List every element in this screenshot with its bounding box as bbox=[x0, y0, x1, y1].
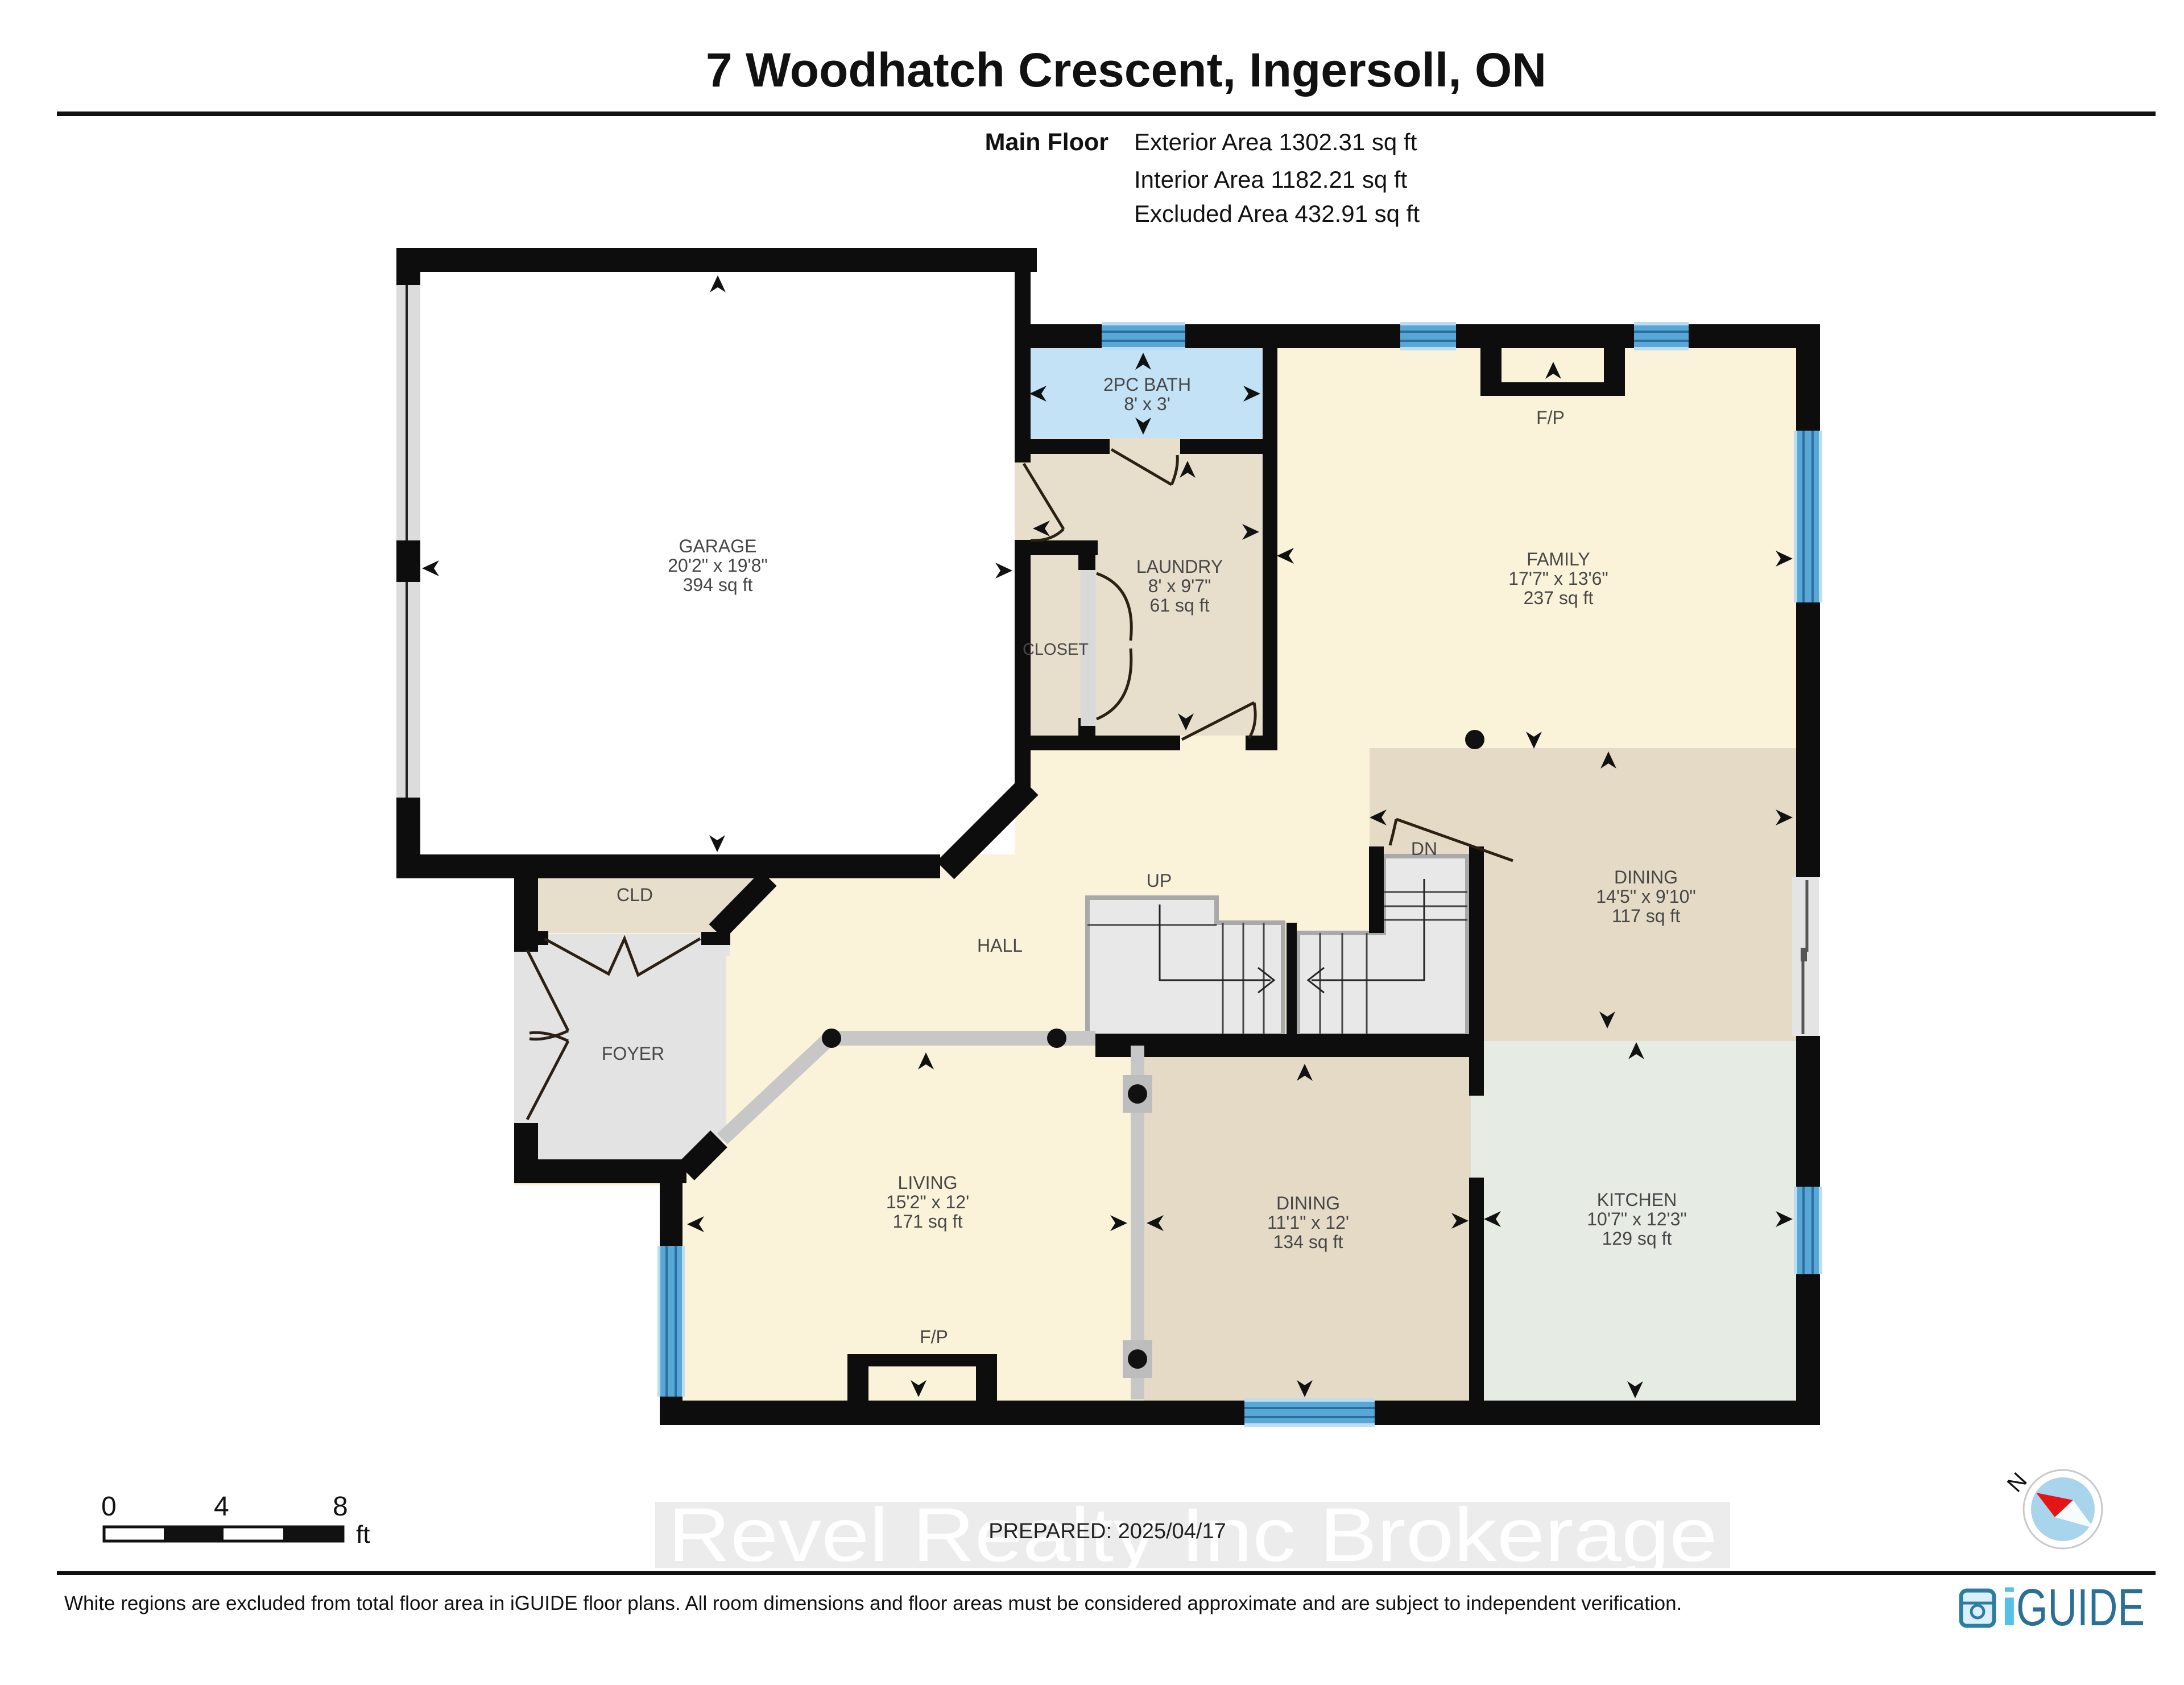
svg-text:8' x 3': 8' x 3' bbox=[1124, 394, 1170, 414]
svg-text:61 sq ft: 61 sq ft bbox=[1150, 595, 1210, 616]
svg-text:8' x 9'7": 8' x 9'7" bbox=[1148, 576, 1211, 596]
svg-text:15'2" x 12': 15'2" x 12' bbox=[886, 1192, 969, 1212]
svg-text:KITCHEN: KITCHEN bbox=[1597, 1190, 1677, 1210]
svg-text:F/P: F/P bbox=[1536, 407, 1565, 428]
svg-text:237 sq ft: 237 sq ft bbox=[1524, 588, 1594, 608]
svg-text:CLD: CLD bbox=[617, 885, 653, 905]
svg-text:14'5" x 9'10": 14'5" x 9'10" bbox=[1596, 886, 1696, 907]
svg-text:F/P: F/P bbox=[920, 1327, 948, 1347]
svg-text:Excluded Area 432.91 sq ft: Excluded Area 432.91 sq ft bbox=[1134, 200, 1420, 227]
svg-text:FOYER: FOYER bbox=[602, 1043, 664, 1064]
svg-text:DINING: DINING bbox=[1276, 1193, 1340, 1213]
svg-text:PREPARED: 2025/04/17: PREPARED: 2025/04/17 bbox=[988, 1519, 1226, 1543]
svg-text:4: 4 bbox=[214, 1492, 229, 1522]
svg-text:White regions are excluded fro: White regions are excluded from total fl… bbox=[64, 1592, 1682, 1614]
svg-text:0: 0 bbox=[101, 1492, 117, 1522]
svg-text:17'7" x 13'6": 17'7" x 13'6" bbox=[1508, 568, 1608, 589]
svg-text:GUIDE: GUIDE bbox=[2016, 1579, 2145, 1637]
svg-text:GARAGE: GARAGE bbox=[679, 536, 757, 556]
svg-text:134 sq ft: 134 sq ft bbox=[1273, 1232, 1343, 1252]
svg-text:10'7" x 12'3": 10'7" x 12'3" bbox=[1587, 1209, 1687, 1229]
svg-text:Exterior Area 1302.31 sq ft: Exterior Area 1302.31 sq ft bbox=[1134, 129, 1417, 155]
svg-text:7 Woodhatch Crescent, Ingersol: 7 Woodhatch Crescent, Ingersoll, ON bbox=[706, 43, 1546, 97]
svg-text:Interior Area 1182.21 sq ft: Interior Area 1182.21 sq ft bbox=[1134, 166, 1408, 193]
svg-text:LIVING: LIVING bbox=[898, 1172, 958, 1193]
svg-text:117 sq ft: 117 sq ft bbox=[1612, 906, 1680, 926]
svg-text:394 sq ft: 394 sq ft bbox=[683, 575, 753, 595]
svg-text:20'2" x 19'8": 20'2" x 19'8" bbox=[668, 555, 768, 576]
svg-text:8: 8 bbox=[333, 1492, 348, 1522]
svg-text:UP: UP bbox=[1147, 870, 1172, 891]
svg-text:DINING: DINING bbox=[1614, 867, 1678, 887]
svg-text:HALL: HALL bbox=[977, 935, 1023, 956]
svg-text:LAUNDRY: LAUNDRY bbox=[1136, 556, 1223, 577]
svg-text:2PC BATH: 2PC BATH bbox=[1103, 374, 1191, 395]
svg-text:129 sq ft: 129 sq ft bbox=[1602, 1228, 1672, 1249]
svg-text:FAMILY: FAMILY bbox=[1527, 549, 1590, 569]
svg-text:Main Floor: Main Floor bbox=[985, 129, 1109, 156]
svg-text:ft: ft bbox=[356, 1521, 370, 1548]
svg-text:CLOSET: CLOSET bbox=[1023, 641, 1089, 659]
svg-text:DN: DN bbox=[1411, 839, 1437, 859]
svg-text:171 sq ft: 171 sq ft bbox=[893, 1211, 963, 1232]
svg-text:11'1" x 12': 11'1" x 12' bbox=[1267, 1212, 1349, 1233]
